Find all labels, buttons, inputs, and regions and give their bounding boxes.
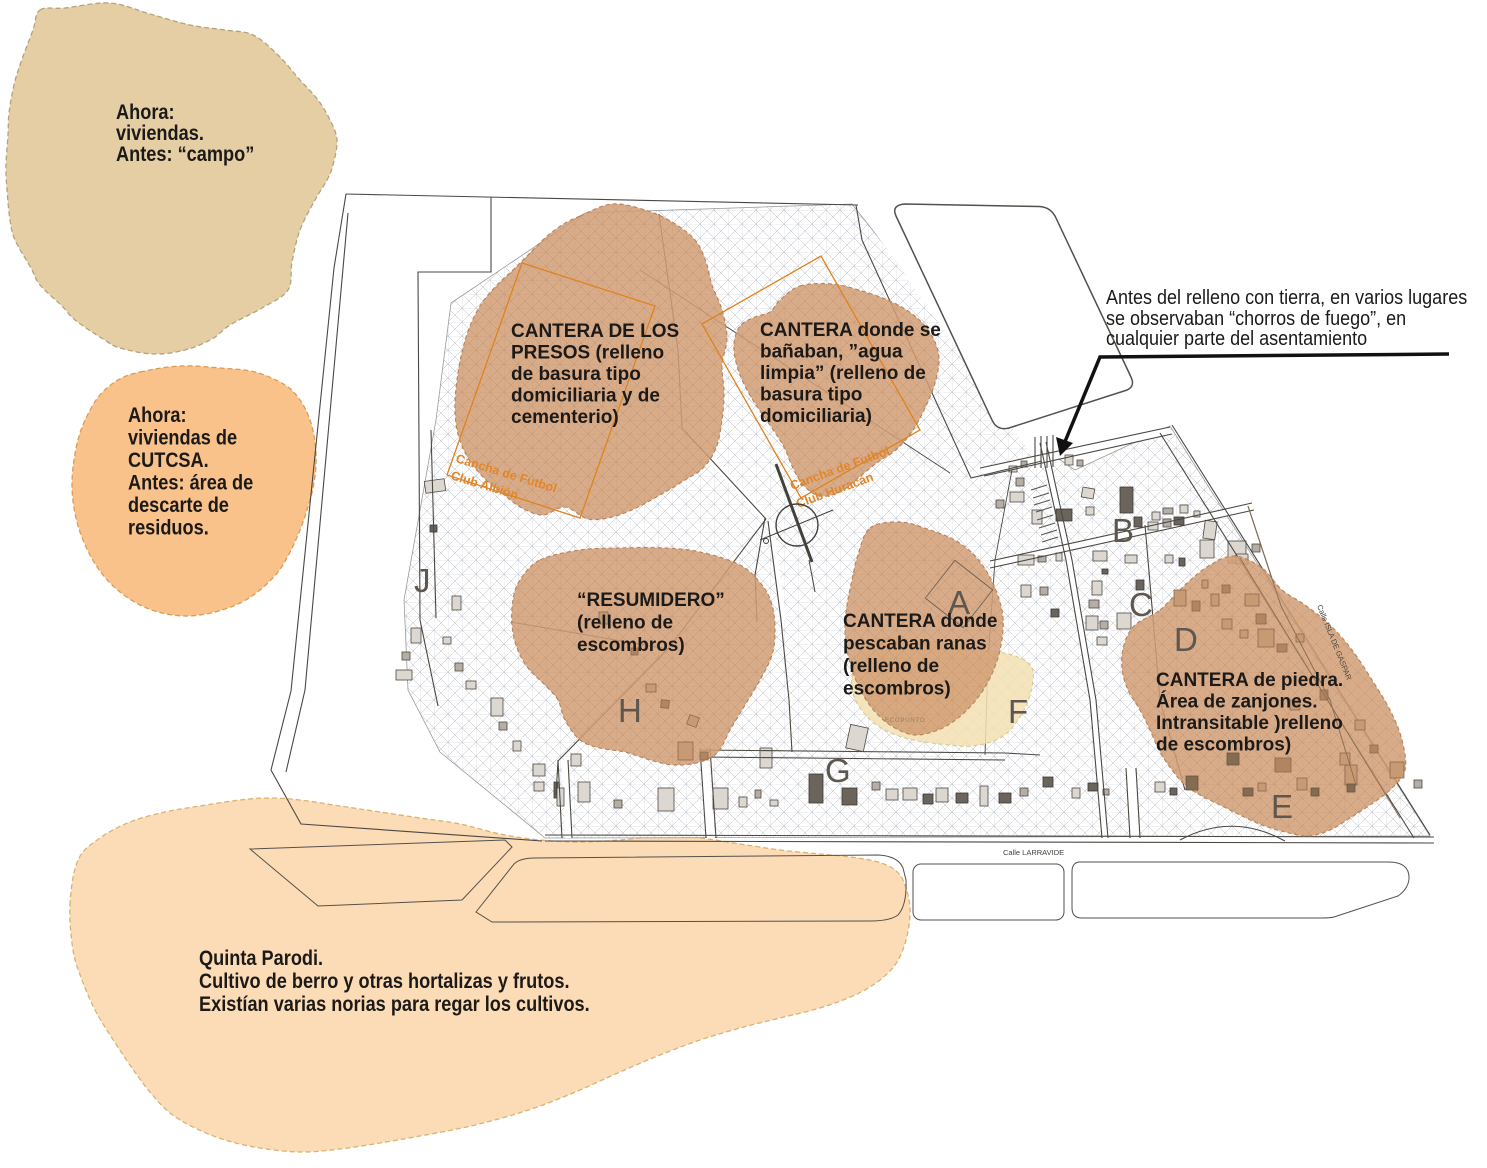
svg-text:residuos.: residuos. bbox=[128, 517, 209, 540]
svg-text:(relleno de: (relleno de bbox=[577, 613, 673, 634]
svg-text:CANTERA de piedra.: CANTERA de piedra. bbox=[1156, 670, 1343, 691]
svg-text:CUTCSA.: CUTCSA. bbox=[128, 449, 209, 472]
svg-text:D: D bbox=[1174, 621, 1198, 658]
svg-text:J: J bbox=[414, 562, 431, 599]
svg-text:H: H bbox=[618, 692, 642, 729]
svg-text:ECOPUNTO: ECOPUNTO bbox=[885, 718, 925, 724]
svg-text:CANTERA donde se: CANTERA donde se bbox=[760, 320, 941, 341]
svg-text:Antes: área de: Antes: área de bbox=[128, 472, 253, 495]
svg-text:Cultivo de berro y otras horta: Cultivo de berro y otras hortalizas y fr… bbox=[199, 970, 570, 993]
svg-text:G: G bbox=[825, 752, 851, 789]
svg-text:domiciliaria): domiciliaria) bbox=[760, 406, 872, 427]
svg-text:basura tipo: basura tipo bbox=[760, 385, 862, 406]
svg-text:Antes del relleno con tierra,: Antes del relleno con tierra, en varios … bbox=[1106, 287, 1467, 309]
svg-text:Área de zanjones.: Área de zanjones. bbox=[1156, 691, 1318, 713]
svg-text:escombros): escombros) bbox=[577, 635, 685, 656]
svg-text:(relleno de: (relleno de bbox=[843, 656, 939, 677]
svg-text:se observaban “chorros de fueg: se observaban “chorros de fuego”, en bbox=[1106, 308, 1406, 330]
svg-text:domiciliaria y de: domiciliaria y de bbox=[511, 386, 660, 407]
svg-text:Intransitable )relleno: Intransitable )relleno bbox=[1156, 713, 1343, 734]
svg-text:escombros): escombros) bbox=[843, 679, 951, 700]
svg-text:bañaban, ”agua: bañaban, ”agua bbox=[760, 342, 903, 363]
svg-text:limpia” (relleno de: limpia” (relleno de bbox=[760, 363, 926, 384]
svg-text:Antes: “campo”: Antes: “campo” bbox=[116, 143, 254, 166]
svg-text:cementerio): cementerio) bbox=[511, 407, 619, 428]
svg-text:“RESUMIDERO”: “RESUMIDERO” bbox=[577, 590, 725, 611]
svg-text:E: E bbox=[1271, 788, 1293, 825]
svg-text:viviendas de: viviendas de bbox=[128, 427, 237, 450]
svg-text:viviendas.: viviendas. bbox=[116, 122, 204, 145]
svg-text:Ahora:: Ahora: bbox=[128, 404, 187, 427]
svg-text:C: C bbox=[1129, 586, 1153, 623]
svg-text:CANTERA donde: CANTERA donde bbox=[843, 611, 997, 632]
svg-text:Quinta Parodi.: Quinta Parodi. bbox=[199, 947, 323, 970]
svg-text:cualquier parte del asentamien: cualquier parte del asentamiento bbox=[1106, 328, 1367, 350]
svg-text:CANTERA DE LOS: CANTERA DE LOS bbox=[511, 321, 679, 342]
svg-text:pescaban ranas: pescaban ranas bbox=[843, 634, 987, 655]
svg-text:de escombros): de escombros) bbox=[1156, 735, 1291, 756]
svg-text:B: B bbox=[1112, 512, 1134, 549]
svg-text:Calle LARRAVIDE: Calle LARRAVIDE bbox=[1003, 848, 1064, 857]
svg-text:PRESOS (relleno: PRESOS (relleno bbox=[511, 343, 664, 364]
svg-text:Existían varias norias para re: Existían varias norias para regar los cu… bbox=[199, 993, 590, 1016]
svg-text:de basura tipo: de basura tipo bbox=[511, 364, 641, 385]
svg-text:descarte de: descarte de bbox=[128, 494, 229, 517]
svg-text:F: F bbox=[1008, 693, 1028, 730]
svg-text:Ahora:: Ahora: bbox=[116, 101, 175, 124]
